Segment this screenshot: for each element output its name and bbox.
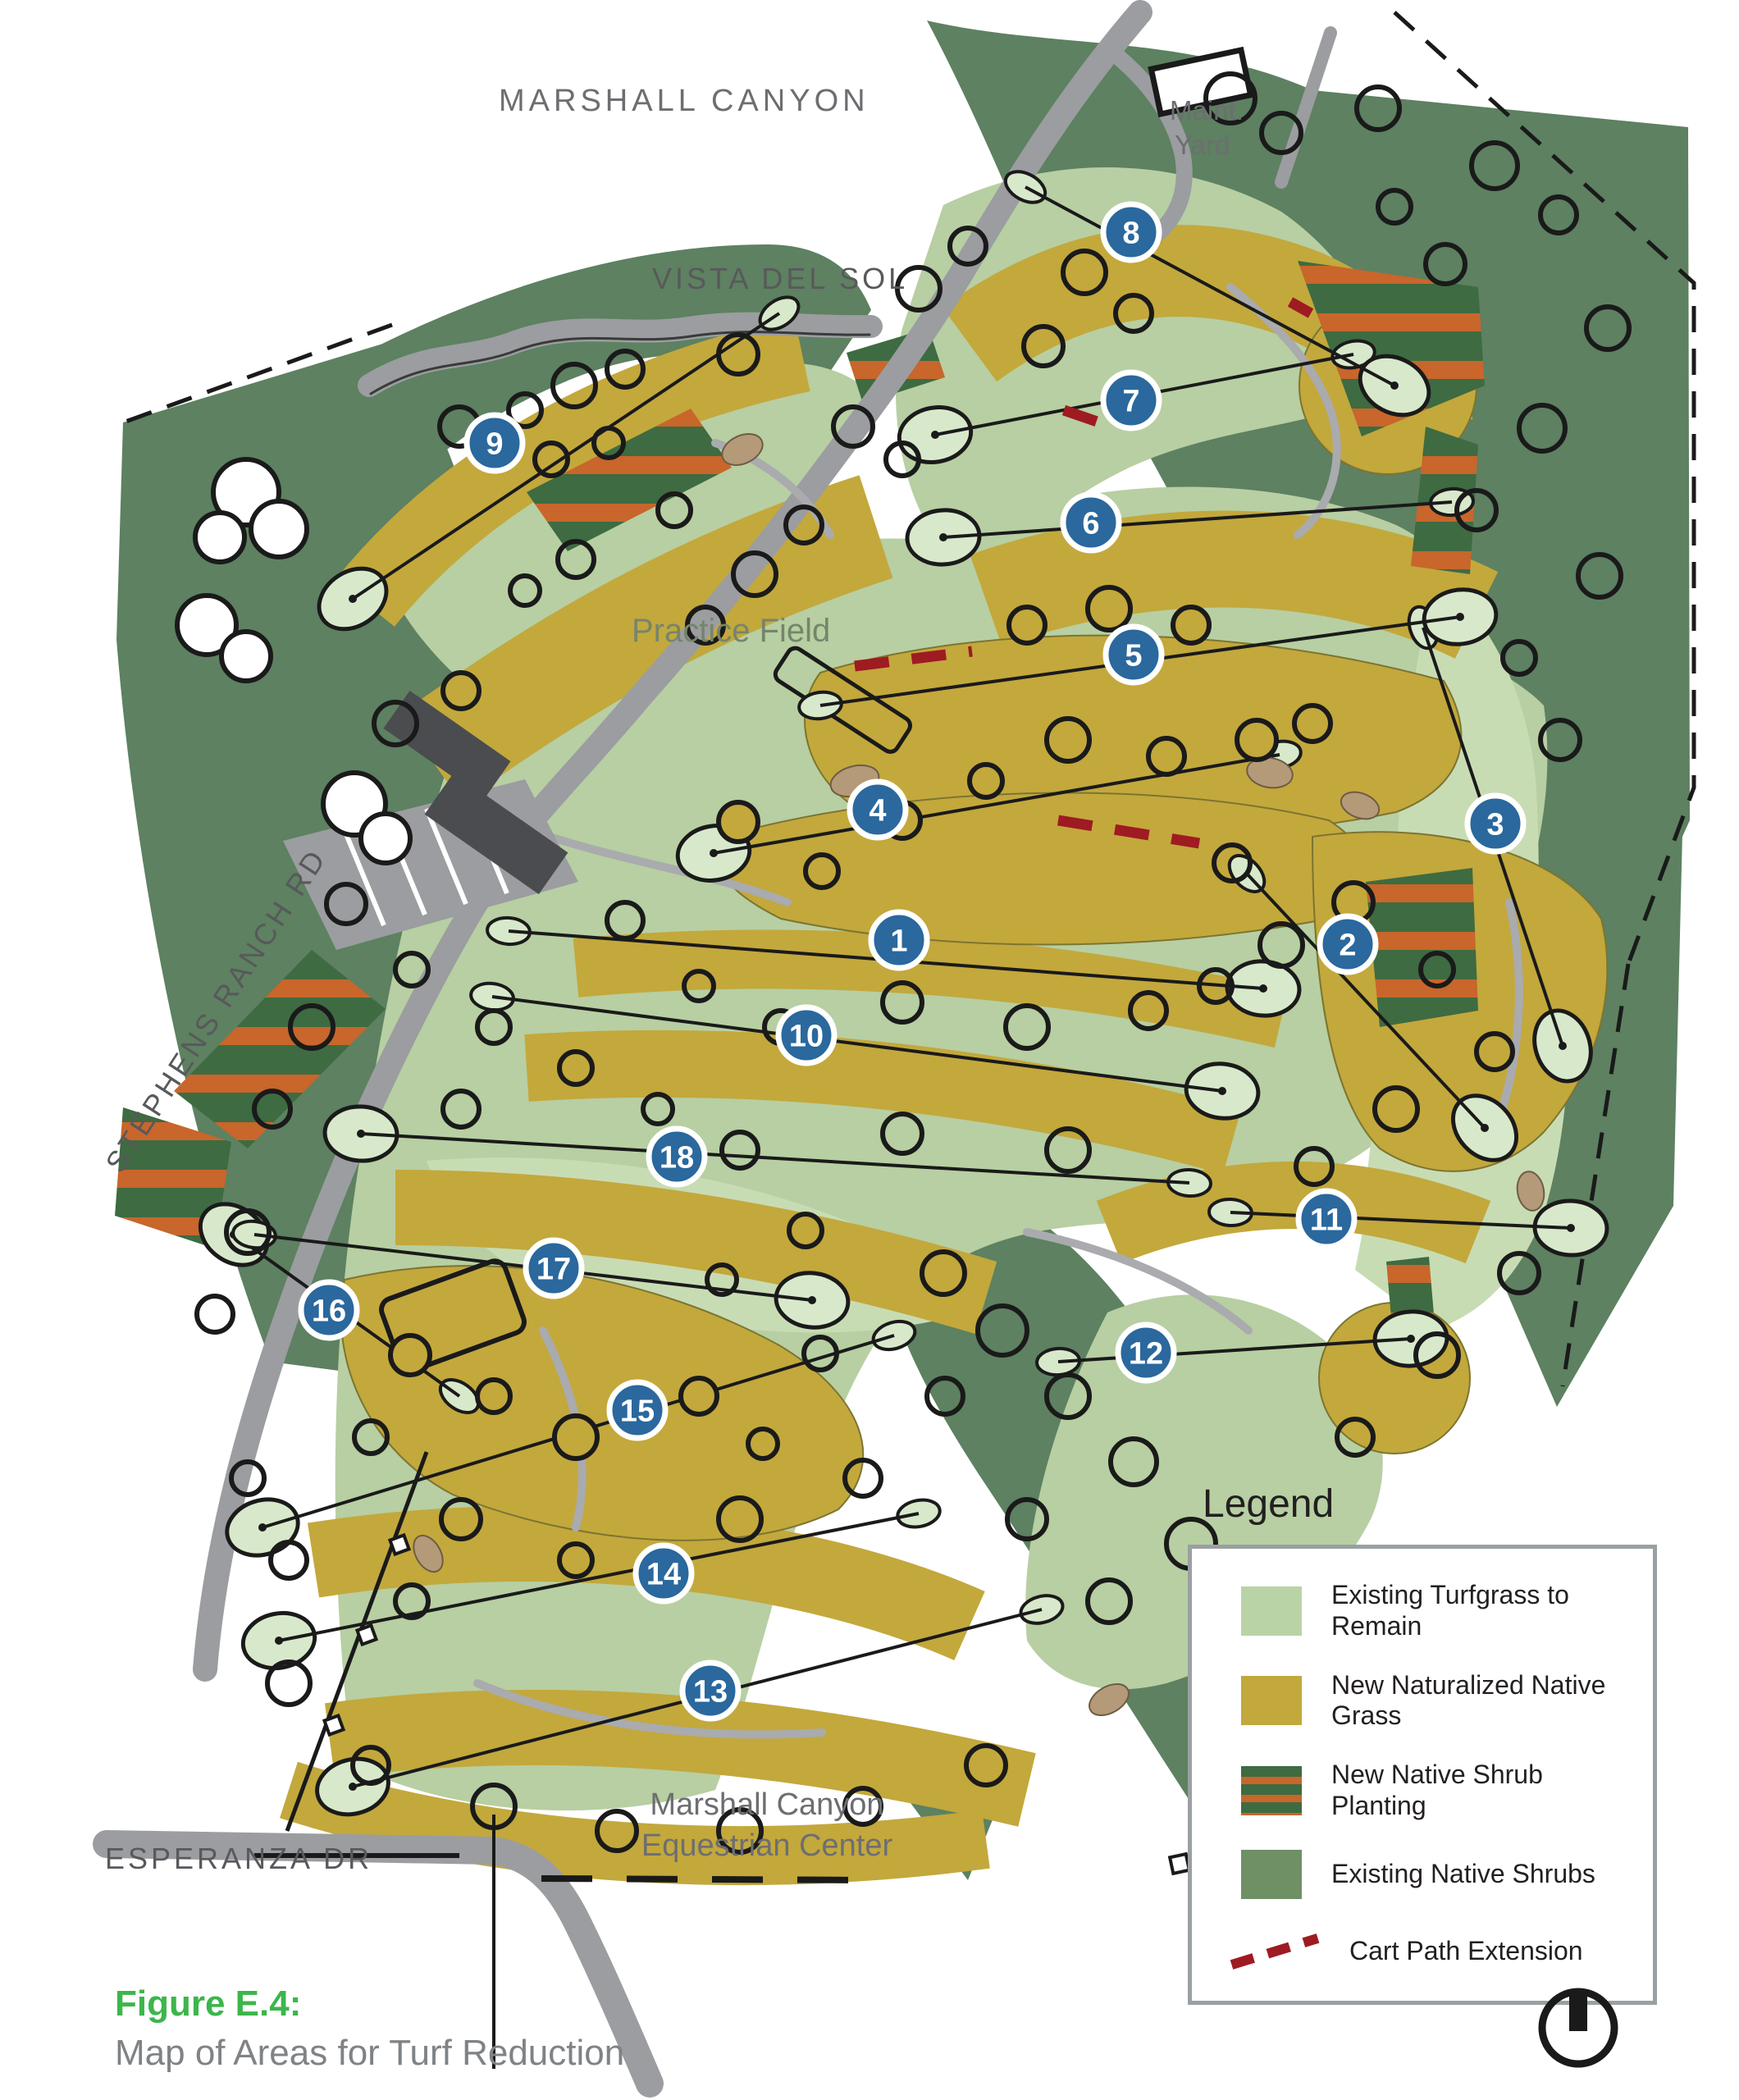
- hole-number: 8: [1122, 216, 1139, 250]
- hole-number: 18: [660, 1140, 694, 1175]
- legend-item: Existing Turfgrass to Remain: [1241, 1580, 1633, 1642]
- legend-box: Existing Turfgrass to RemainNew Naturali…: [1188, 1545, 1657, 2005]
- hole-number: 9: [486, 427, 503, 461]
- legend-item-label: New Naturalized Native Grass: [1331, 1670, 1627, 1732]
- legend-item-label: Existing Native Shrubs: [1331, 1859, 1595, 1890]
- hole-number: 11: [1310, 1203, 1343, 1237]
- hole-marker: 7: [1103, 372, 1159, 428]
- legend-swatch-stripes: [1241, 1766, 1302, 1815]
- label-practice-field: Practice Field: [632, 613, 830, 649]
- hole-number: 12: [1129, 1336, 1163, 1371]
- label-equestrian-1: Marshall Canyon: [650, 1787, 883, 1822]
- hole-number: 4: [869, 793, 886, 828]
- legend-item: New Native Shrub Planting: [1241, 1760, 1633, 1822]
- legend: Legend Existing Turfgrass to RemainNew N…: [1188, 1481, 1657, 2005]
- label-esperanza-dr: ESPERANZA DR: [105, 1842, 372, 1875]
- hole-marker: 14: [636, 1545, 691, 1601]
- label-marshall-canyon: MARSHALL CANYON: [499, 84, 869, 118]
- hole-number: 10: [789, 1019, 824, 1053]
- legend-title: Legend: [1203, 1481, 1657, 1527]
- hole-marker: 3: [1467, 796, 1523, 851]
- hole-marker: 12: [1118, 1325, 1174, 1381]
- label-maint-yard-1: Maint.: [1170, 95, 1244, 126]
- hole-marker: 8: [1103, 204, 1159, 260]
- legend-item: New Naturalized Native Grass: [1241, 1670, 1633, 1732]
- label-equestrian-2: Equestrian Center: [641, 1828, 893, 1863]
- legend-swatch-solid: [1241, 1850, 1302, 1899]
- legend-item-label: New Native Shrub Planting: [1331, 1760, 1627, 1822]
- figure-title: Map of Areas for Turf Reduction: [115, 2033, 624, 2074]
- label-maint-yard-2: Yard: [1175, 130, 1230, 160]
- hole-number: 15: [620, 1394, 655, 1428]
- hole-marker: 1: [871, 912, 927, 968]
- legend-item-label: Cart Path Extension: [1349, 1936, 1583, 1967]
- hole-number: 13: [693, 1674, 728, 1709]
- legend-swatch-dash: [1230, 1927, 1320, 1976]
- hole-number: 17: [536, 1252, 571, 1286]
- legend-item: Cart Path Extension: [1241, 1927, 1633, 1976]
- north-arrow-icon: [1536, 1985, 1621, 2070]
- hole-number: 1: [890, 924, 907, 958]
- label-vista-del-sol: VISTA DEL SOL: [652, 262, 908, 295]
- hole-marker: 4: [850, 782, 906, 838]
- hole-number: 2: [1339, 928, 1356, 962]
- hole-marker: 13: [682, 1663, 738, 1719]
- hole-marker: 16: [301, 1282, 357, 1338]
- cart-path-dash-sample: [1230, 1933, 1320, 1970]
- legend-swatch-solid: [1241, 1586, 1302, 1636]
- hole-number: 14: [646, 1557, 681, 1591]
- hole-marker: 15: [609, 1382, 665, 1438]
- hole-number: 5: [1125, 638, 1142, 673]
- hole-marker: 11: [1299, 1191, 1354, 1247]
- legend-item: Existing Native Shrubs: [1241, 1850, 1633, 1899]
- hole-marker: 5: [1106, 627, 1162, 682]
- hole-marker: 18: [649, 1129, 705, 1185]
- hole-marker: 6: [1063, 495, 1119, 550]
- turf-reduction-map-page: { "map": { "labels": { "region_top": "MA…: [0, 0, 1739, 2100]
- figure-caption: Figure E.4: Map of Areas for Turf Reduct…: [115, 1984, 624, 2074]
- figure-label: Figure E.4:: [115, 1984, 624, 2025]
- legend-item-label: Existing Turfgrass to Remain: [1331, 1580, 1627, 1642]
- hole-marker: 17: [526, 1240, 582, 1296]
- hole-marker: 2: [1320, 916, 1376, 972]
- legend-swatch-solid: [1241, 1676, 1302, 1725]
- hole-marker: 9: [467, 415, 523, 471]
- hole-marker: 10: [778, 1007, 834, 1063]
- hole-number: 16: [312, 1294, 346, 1328]
- hole-number: 6: [1082, 506, 1099, 541]
- hole-number: 7: [1122, 384, 1139, 418]
- hole-number: 3: [1486, 807, 1504, 842]
